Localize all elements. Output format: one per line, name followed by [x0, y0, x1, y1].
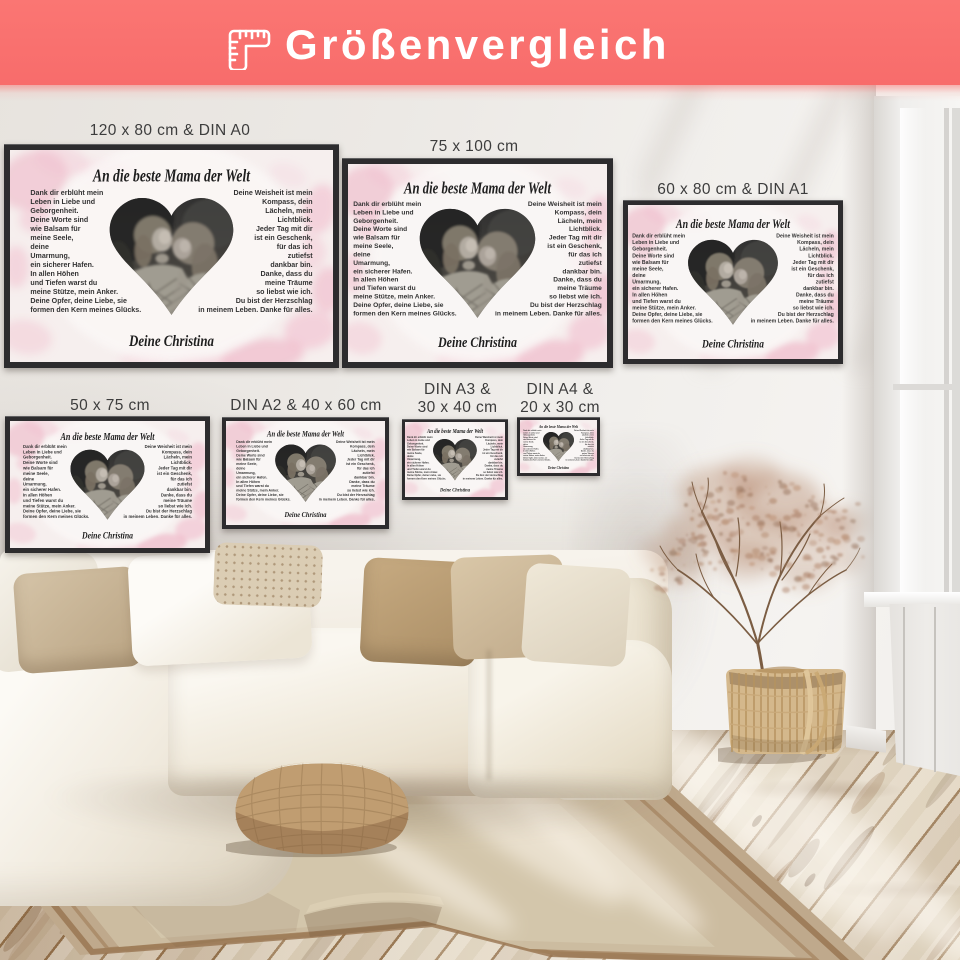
svg-text:wie Balsam für: wie Balsam für [352, 235, 400, 242]
svg-text:Dank dir erblüht mein: Dank dir erblüht mein [632, 234, 685, 240]
svg-text:zutiefst: zutiefst [288, 252, 313, 260]
svg-text:formen den Kern meines Glücks.: formen den Kern meines Glücks. [236, 498, 290, 502]
svg-text:Geborgenheit.: Geborgenheit. [23, 455, 52, 460]
svg-text:Dank dir erblüht mein: Dank dir erblüht mein [23, 444, 67, 449]
svg-text:Deine Weisheit ist mein: Deine Weisheit ist mein [528, 201, 602, 208]
svg-text:Umarmung,: Umarmung, [632, 280, 661, 286]
svg-text:Lächeln, mein: Lächeln, mein [352, 449, 375, 453]
svg-text:und Tiefen warst du: und Tiefen warst du [30, 279, 97, 287]
svg-text:ein sicherer Hafen.: ein sicherer Hafen. [30, 261, 94, 269]
svg-text:formen den Kern meines Glücks.: formen den Kern meines Glücks. [353, 310, 457, 317]
svg-text:Deine Opfer, deine Liebe, sie: Deine Opfer, deine Liebe, sie [236, 493, 283, 497]
svg-text:In allen Höhen: In allen Höhen [236, 480, 260, 484]
svg-text:ein sicherer Hafen.: ein sicherer Hafen. [236, 475, 267, 479]
svg-text:Deine Christina: Deine Christina [81, 531, 133, 541]
svg-text:Danke, dass du: Danke, dass du [796, 293, 834, 299]
svg-text:Lichtblick.: Lichtblick. [569, 226, 602, 233]
svg-text:in meinem Leben. Danke für all: in meinem Leben. Danke für alles. [463, 477, 504, 480]
svg-text:deine: deine [23, 476, 35, 481]
svg-text:zutiefst: zutiefst [579, 260, 603, 267]
svg-text:ein sicherer Hafen.: ein sicherer Hafen. [353, 268, 412, 275]
svg-text:Jeder Tag mit dir: Jeder Tag mit dir [793, 260, 834, 266]
svg-text:Leben in Liebe und: Leben in Liebe und [632, 240, 679, 246]
svg-text:so liebst wie ich.: so liebst wie ich. [256, 288, 312, 296]
svg-text:Kompass, dein: Kompass, dein [262, 198, 312, 206]
svg-text:in meinem Leben. Danke für all: in meinem Leben. Danke für alles. [495, 310, 602, 317]
svg-text:Lichtblick.: Lichtblick. [808, 253, 834, 259]
svg-text:Deine Christina: Deine Christina [701, 339, 764, 351]
svg-text:meine Seele,: meine Seele, [30, 234, 73, 242]
svg-text:Deine Worte sind: Deine Worte sind [632, 253, 674, 259]
svg-text:Kompass, dein: Kompass, dein [350, 445, 375, 449]
svg-text:Deine Worte sind: Deine Worte sind [30, 216, 88, 224]
svg-text:wie Balsam für: wie Balsam für [29, 225, 80, 233]
svg-text:zutiefst: zutiefst [816, 280, 834, 286]
svg-text:Du bist der Herzschlag: Du bist der Herzschlag [236, 297, 313, 305]
svg-text:Deine Opfer, deine Liebe, sie: Deine Opfer, deine Liebe, sie [353, 302, 444, 309]
svg-text:meine Träume: meine Träume [163, 498, 192, 503]
svg-text:meine Träume: meine Träume [265, 279, 313, 287]
svg-text:für das ich: für das ich [357, 467, 375, 471]
svg-text:Danke, dass du: Danke, dass du [553, 277, 602, 284]
svg-text:Deine Christina: Deine Christina [547, 466, 569, 470]
svg-text:Kompass, dein: Kompass, dein [162, 449, 193, 454]
svg-text:Kompass, dein: Kompass, dein [797, 240, 834, 246]
svg-text:meine Seele,: meine Seele, [632, 266, 664, 272]
svg-text:Deine Weisheit ist mein: Deine Weisheit ist mein [145, 444, 193, 449]
svg-text:An die beste Mama der Welt: An die beste Mama der Welt [675, 216, 790, 231]
svg-text:für das ich: für das ich [277, 243, 313, 251]
svg-text:Deine Worte sind: Deine Worte sind [353, 226, 407, 233]
svg-text:wie Balsam für: wie Balsam für [631, 260, 668, 266]
svg-text:dankbar bin.: dankbar bin. [270, 261, 312, 269]
svg-text:An die beste Mama der Welt: An die beste Mama der Welt [60, 431, 155, 443]
svg-text:An die beste Mama der Welt: An die beste Mama der Welt [92, 165, 251, 185]
svg-text:Lichtblick.: Lichtblick. [171, 460, 192, 465]
svg-text:Du bist der Herzschlag: Du bist der Herzschlag [530, 302, 602, 309]
svg-text:Jeder Tag mit dir: Jeder Tag mit dir [549, 235, 602, 242]
svg-text:meine Stütze, mein Anker.: meine Stütze, mein Anker. [30, 288, 118, 296]
svg-text:Deine Weisheit ist mein: Deine Weisheit ist mein [233, 189, 312, 197]
svg-text:und Tiefen warst du: und Tiefen warst du [236, 484, 269, 488]
svg-text:Deine Worte sind: Deine Worte sind [23, 460, 58, 465]
svg-text:meine Seele,: meine Seele, [23, 471, 49, 476]
svg-text:Leben in Liebe und: Leben in Liebe und [30, 198, 95, 206]
svg-text:deine: deine [236, 467, 245, 471]
svg-text:Umarmung,: Umarmung, [30, 252, 69, 260]
svg-text:so liebst wie ich.: so liebst wie ich. [158, 503, 192, 508]
svg-text:Deine Opfer, deine Liebe, sie: Deine Opfer, deine Liebe, sie [632, 312, 702, 318]
svg-text:meine Träume: meine Träume [557, 285, 602, 292]
svg-text:ist ein Geschenk,: ist ein Geschenk, [791, 266, 834, 272]
svg-text:formen den Kern meines Glücks.: formen den Kern meines Glücks. [632, 319, 713, 325]
svg-text:dankbar bin.: dankbar bin. [803, 286, 834, 292]
svg-text:ist ein Geschenk,: ist ein Geschenk, [254, 234, 312, 242]
svg-text:Geborgenheit.: Geborgenheit. [30, 207, 78, 215]
svg-text:zutiefst: zutiefst [177, 482, 192, 487]
svg-text:so liebst wie ich.: so liebst wie ich. [549, 294, 602, 301]
svg-text:Kompass, dein: Kompass, dein [555, 209, 602, 216]
svg-text:deine: deine [353, 252, 371, 259]
svg-text:Umarmung,: Umarmung, [236, 471, 255, 475]
svg-text:Dank dir erblüht mein: Dank dir erblüht mein [236, 440, 272, 444]
svg-text:wie Balsam für: wie Balsam für [235, 458, 261, 462]
svg-text:so liebst wie ich.: so liebst wie ich. [347, 489, 375, 493]
svg-text:formen den Kern meines Glücks.: formen den Kern meines Glücks. [523, 460, 551, 462]
svg-text:und Tiefen warst du: und Tiefen warst du [23, 498, 63, 503]
svg-text:in meinem Leben. Danke für all: in meinem Leben. Danke für alles. [198, 306, 312, 314]
svg-text:in meinem Leben. Danke für all: in meinem Leben. Danke für alles. [565, 460, 594, 462]
svg-text:Deine Worte sind: Deine Worte sind [236, 453, 264, 457]
svg-text:meine Träume: meine Träume [799, 299, 834, 305]
svg-text:Geborgenheit.: Geborgenheit. [236, 449, 260, 453]
svg-text:Danke, dass du: Danke, dass du [349, 480, 374, 484]
svg-text:Geborgenheit.: Geborgenheit. [632, 247, 668, 253]
svg-text:Lächeln, mein: Lächeln, mein [164, 455, 193, 460]
svg-text:formen den Kern meines Glücks.: formen den Kern meines Glücks. [23, 514, 89, 519]
svg-text:wie Balsam für: wie Balsam für [22, 466, 53, 471]
svg-text:In allen Höhen: In allen Höhen [30, 270, 78, 278]
svg-text:ist ein Geschenk,: ist ein Geschenk, [346, 462, 375, 466]
svg-text:in meinem Leben. Danke für all: in meinem Leben. Danke für alles. [124, 514, 193, 519]
svg-text:dankbar bin.: dankbar bin. [562, 268, 602, 275]
svg-text:Leben in Liebe und: Leben in Liebe und [23, 449, 62, 454]
svg-text:meine Seele,: meine Seele, [236, 462, 257, 466]
svg-text:Jeder Tag mit dir: Jeder Tag mit dir [347, 458, 375, 462]
svg-text:ist ein Geschenk,: ist ein Geschenk, [157, 471, 192, 476]
svg-text:Deine Weisheit ist mein: Deine Weisheit ist mein [776, 234, 834, 240]
svg-text:An die beste Mama der Welt: An die beste Mama der Welt [538, 424, 578, 429]
svg-text:Deine Christina: Deine Christina [437, 335, 517, 351]
svg-text:Leben in Liebe und: Leben in Liebe und [353, 209, 413, 216]
svg-text:Du bist der Herzschlag: Du bist der Herzschlag [778, 312, 834, 318]
svg-text:Deine Opfer, deine Liebe, sie: Deine Opfer, deine Liebe, sie [23, 509, 82, 514]
svg-text:meine Seele,: meine Seele, [353, 243, 393, 250]
svg-text:An die beste Mama der Welt: An die beste Mama der Welt [403, 178, 552, 197]
svg-text:Deine Weisheit ist mein: Deine Weisheit ist mein [336, 440, 375, 444]
svg-text:dankbar bin.: dankbar bin. [167, 487, 192, 492]
svg-text:Jeder Tag mit dir: Jeder Tag mit dir [256, 225, 313, 233]
svg-text:ist ein Geschenk,: ist ein Geschenk, [547, 243, 602, 250]
svg-text:Dank dir erblüht mein: Dank dir erblüht mein [353, 201, 421, 208]
svg-text:Deine Christina: Deine Christina [128, 333, 214, 350]
svg-text:so liebst wie ich.: so liebst wie ich. [793, 306, 835, 312]
svg-text:Deine Opfer, deine Liebe, sie: Deine Opfer, deine Liebe, sie [30, 297, 127, 305]
svg-text:Geborgenheit.: Geborgenheit. [353, 218, 398, 225]
svg-text:meine Stütze, mein Anker.: meine Stütze, mein Anker. [353, 294, 435, 301]
svg-text:meine Träume: meine Träume [351, 484, 374, 488]
svg-text:meine Stütze, mein Anker.: meine Stütze, mein Anker. [632, 306, 696, 312]
svg-text:An die beste Mama der Welt: An die beste Mama der Welt [426, 428, 483, 435]
svg-text:deine: deine [30, 243, 49, 251]
svg-text:Lächeln, mein: Lächeln, mein [799, 247, 833, 253]
svg-text:meine Stütze, mein Anker.: meine Stütze, mein Anker. [23, 503, 76, 508]
svg-text:Du bist der Herzschlag: Du bist der Herzschlag [337, 493, 375, 497]
svg-text:in meinem Leben. Danke für all: in meinem Leben. Danke für alles. [319, 498, 375, 502]
svg-text:Lichtblick.: Lichtblick. [358, 453, 375, 457]
svg-text:Danke, dass du: Danke, dass du [261, 270, 313, 278]
svg-text:Lächeln, mein: Lächeln, mein [558, 218, 602, 225]
svg-text:meine Stütze, mein Anker.: meine Stütze, mein Anker. [236, 489, 279, 493]
svg-text:Deine Christina: Deine Christina [284, 510, 327, 519]
svg-text:ein sicherer Hafen.: ein sicherer Hafen. [23, 487, 61, 492]
svg-text:in meinem Leben. Danke für all: in meinem Leben. Danke für alles. [751, 319, 835, 325]
svg-text:Umarmung,: Umarmung, [353, 260, 390, 267]
svg-text:Lichtblick.: Lichtblick. [278, 216, 313, 224]
svg-text:und Tiefen warst du: und Tiefen warst du [632, 299, 681, 305]
svg-text:Jeder Tag mit dir: Jeder Tag mit dir [158, 466, 192, 471]
svg-text:Dank dir erblüht mein: Dank dir erblüht mein [30, 189, 103, 197]
svg-text:An die beste Mama der Welt: An die beste Mama der Welt [266, 428, 344, 438]
svg-text:In allen Höhen: In allen Höhen [632, 293, 667, 299]
svg-text:deine: deine [632, 273, 646, 279]
svg-text:Danke, dass du: Danke, dass du [161, 493, 193, 498]
svg-text:Lächeln, mein: Lächeln, mein [265, 207, 312, 215]
svg-text:für das ich: für das ich [808, 273, 834, 279]
svg-text:Leben in Liebe und: Leben in Liebe und [236, 445, 268, 449]
svg-text:Du bist der Herzschlag: Du bist der Herzschlag [146, 509, 192, 514]
svg-text:In allen Höhen: In allen Höhen [23, 493, 52, 498]
svg-text:In allen Höhen: In allen Höhen [353, 277, 398, 284]
svg-text:formen den Kern meines Glücks.: formen den Kern meines Glücks. [30, 306, 141, 314]
svg-text:zutiefst: zutiefst [363, 471, 376, 475]
svg-text:ein sicherer Hafen.: ein sicherer Hafen. [632, 286, 679, 292]
svg-text:Deine Christina: Deine Christina [439, 487, 470, 493]
svg-text:für das ich: für das ich [568, 252, 602, 259]
svg-text:Umarmung,: Umarmung, [23, 482, 47, 487]
svg-text:und Tiefen warst du: und Tiefen warst du [353, 285, 415, 292]
svg-text:formen den Kern meines Glücks.: formen den Kern meines Glücks. [407, 477, 446, 480]
svg-text:für das ich: für das ich [171, 476, 193, 481]
svg-text:dankbar bin.: dankbar bin. [354, 475, 375, 479]
